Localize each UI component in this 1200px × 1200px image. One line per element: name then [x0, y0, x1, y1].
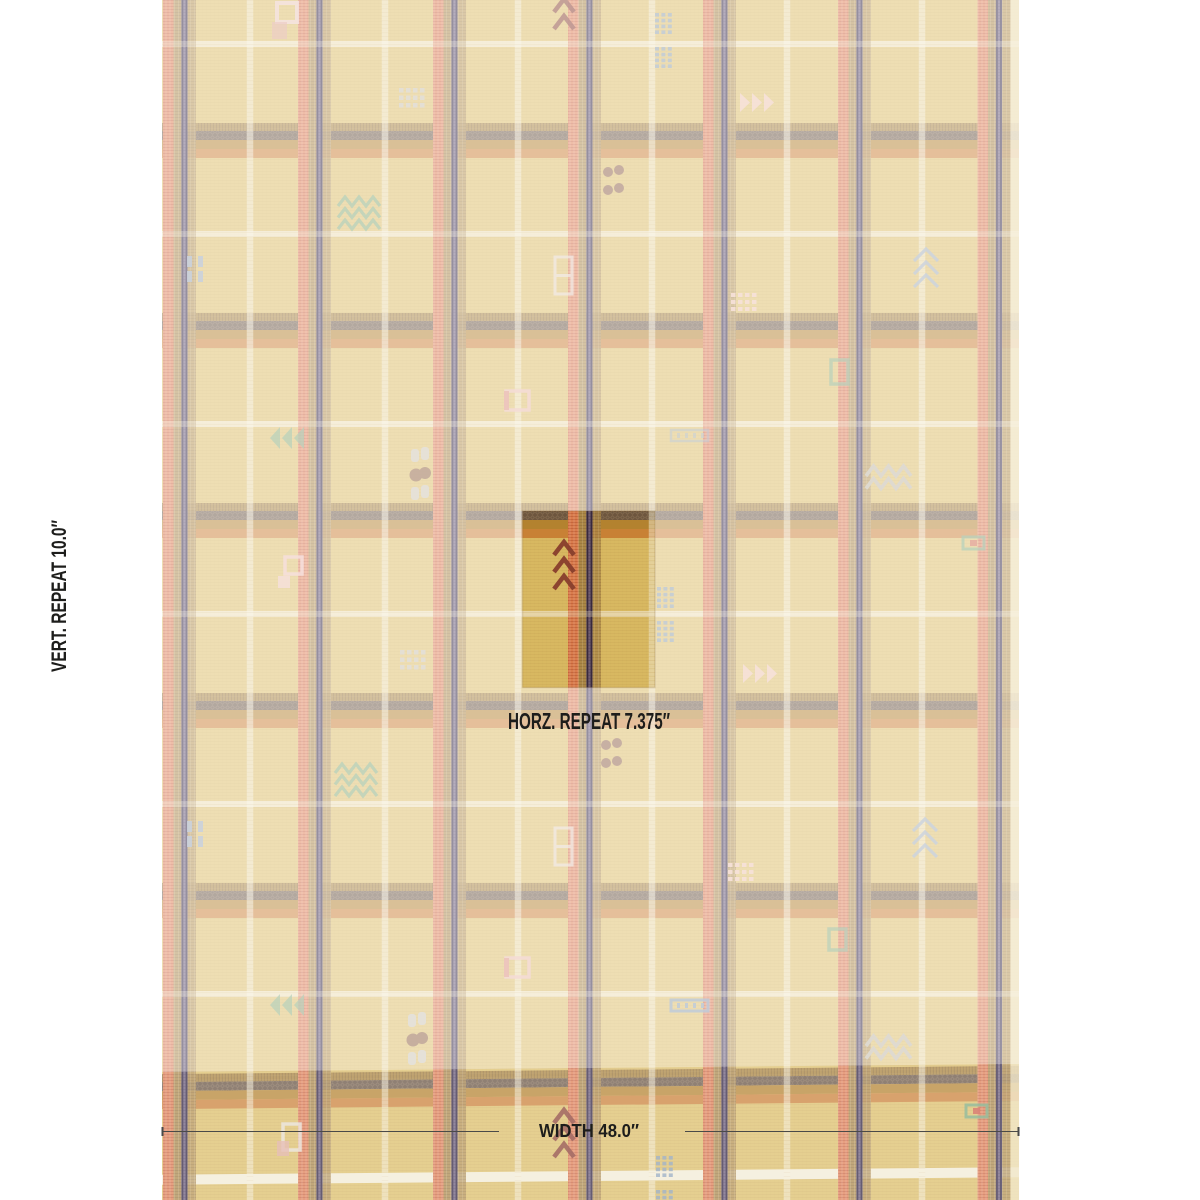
svg-text:HORZ. REPEAT 7.375″: HORZ. REPEAT 7.375″	[508, 708, 670, 734]
svg-text:WIDTH 48.0″: WIDTH 48.0″	[539, 1120, 639, 1141]
svg-text:VERT. REPEAT 10.0″: VERT. REPEAT 10.0″	[47, 520, 71, 672]
